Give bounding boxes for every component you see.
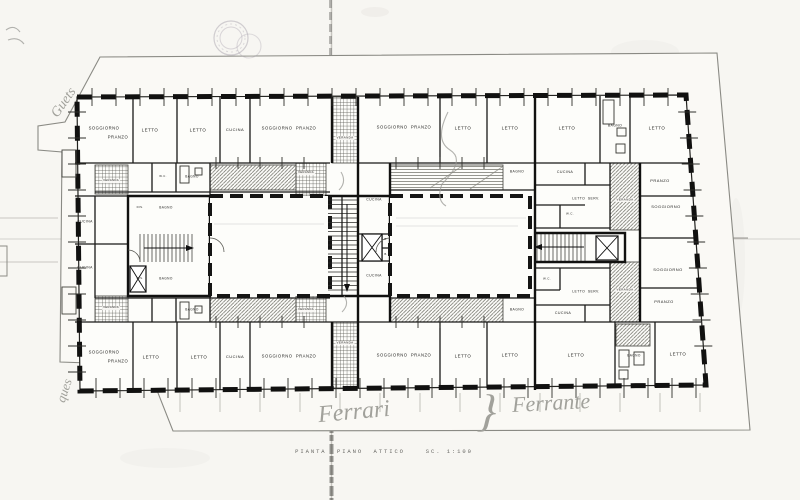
neighbor-sheet-fragment xyxy=(0,246,7,276)
elevator-right xyxy=(596,236,618,260)
big-room-right xyxy=(390,196,530,296)
big-room-left xyxy=(210,196,330,296)
stamp-icon xyxy=(214,21,261,58)
elevator-center xyxy=(362,234,382,261)
plan-caption: PIANTA PIANO ATTICO SC. 1:100 xyxy=(295,449,473,455)
drawing-sheet: SOGGIORNOPRANZOLETTOLETTOCUCINASOGGIORNO… xyxy=(0,0,800,500)
floor-plan-drawing xyxy=(0,0,800,500)
elevator-left xyxy=(130,266,146,292)
